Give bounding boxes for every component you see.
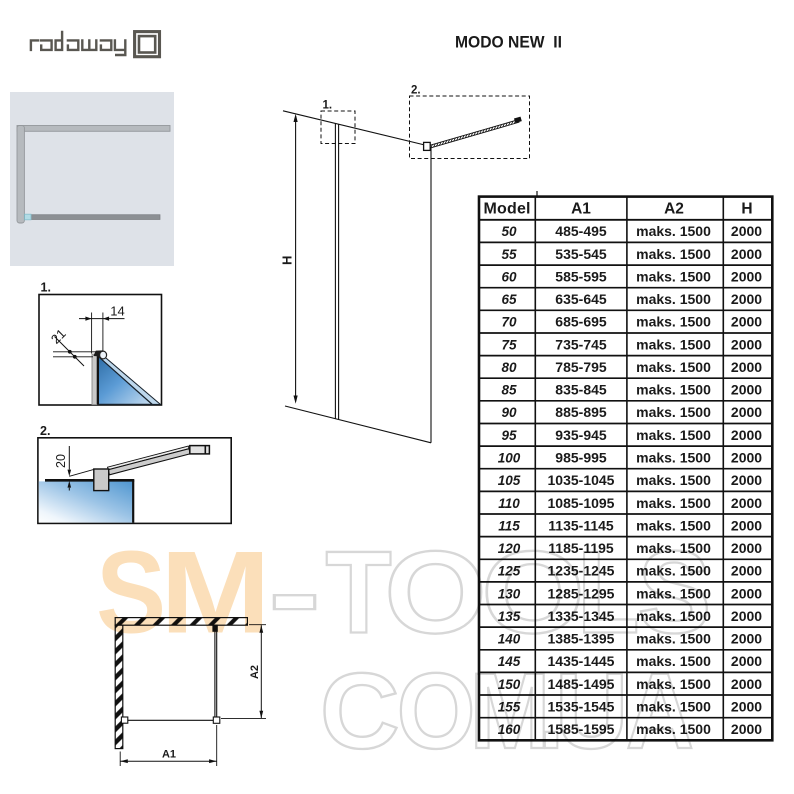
svg-text:A: A: [626, 651, 694, 772]
svg-text:U: U: [555, 651, 628, 772]
svg-text:-: -: [268, 527, 321, 658]
svg-text:O: O: [397, 651, 476, 772]
svg-text:M: M: [160, 527, 271, 658]
svg-text:T: T: [326, 527, 392, 658]
svg-text:L: L: [577, 528, 639, 658]
svg-text:M: M: [470, 650, 550, 771]
svg-text:S: S: [96, 526, 166, 658]
svg-text:C: C: [320, 651, 400, 772]
svg-text:S: S: [638, 527, 711, 658]
svg-text:O: O: [481, 527, 584, 658]
svg-text:O: O: [384, 527, 486, 658]
